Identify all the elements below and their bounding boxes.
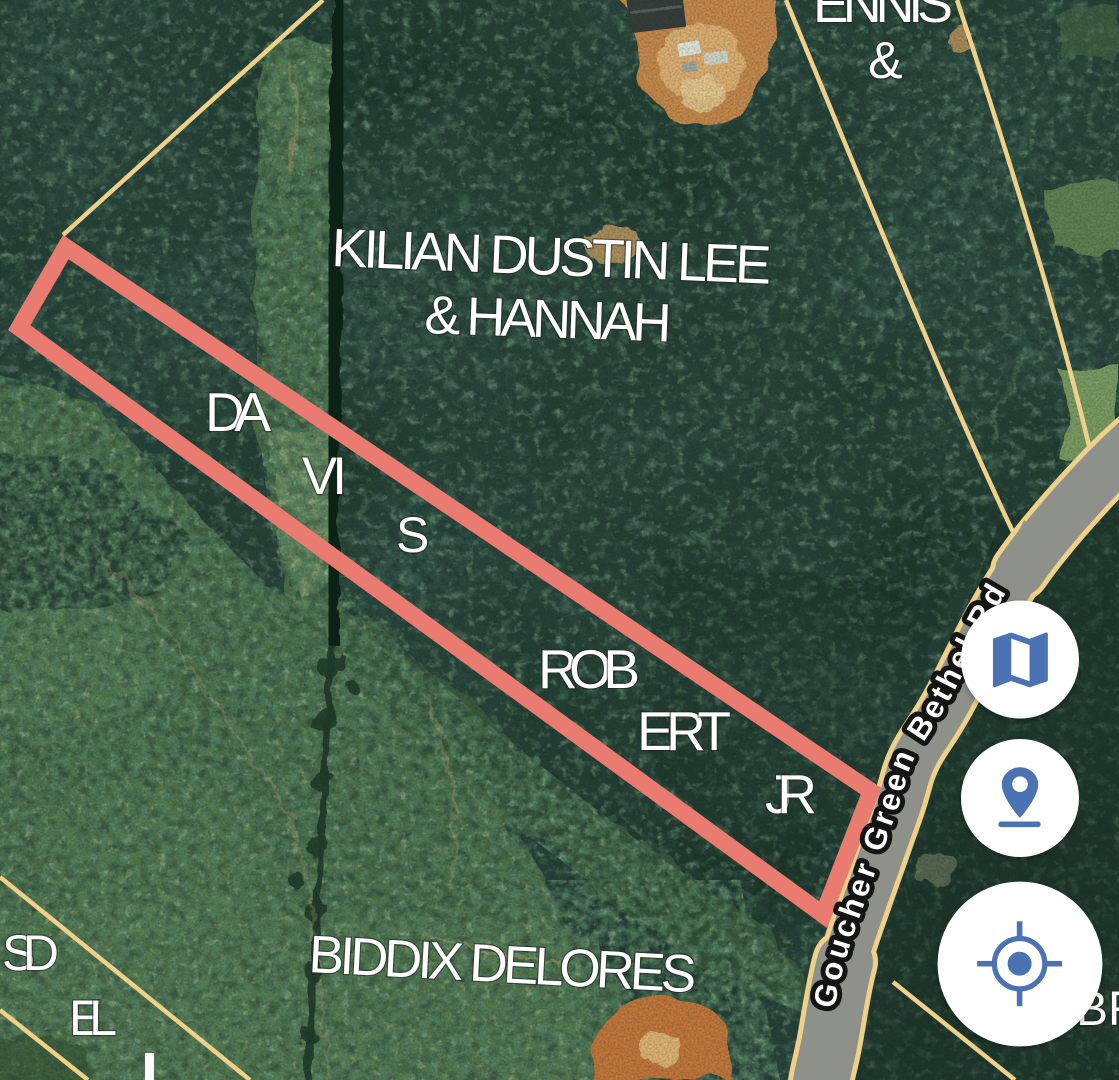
svg-text:ROB: ROB — [538, 638, 640, 700]
svg-text:& HANNAH: & HANNAH — [424, 285, 673, 354]
svg-text:EL: EL — [69, 990, 117, 1046]
svg-text:VI: VI — [302, 447, 347, 506]
svg-text:S: S — [396, 507, 429, 563]
svg-text:SD: SD — [2, 925, 59, 981]
svg-text:ERT: ERT — [637, 700, 731, 762]
svg-text:&: & — [868, 32, 903, 90]
svg-text:ENNIS: ENNIS — [813, 0, 953, 34]
svg-text:JR: JR — [765, 763, 817, 825]
svg-text:DA: DA — [205, 381, 271, 443]
